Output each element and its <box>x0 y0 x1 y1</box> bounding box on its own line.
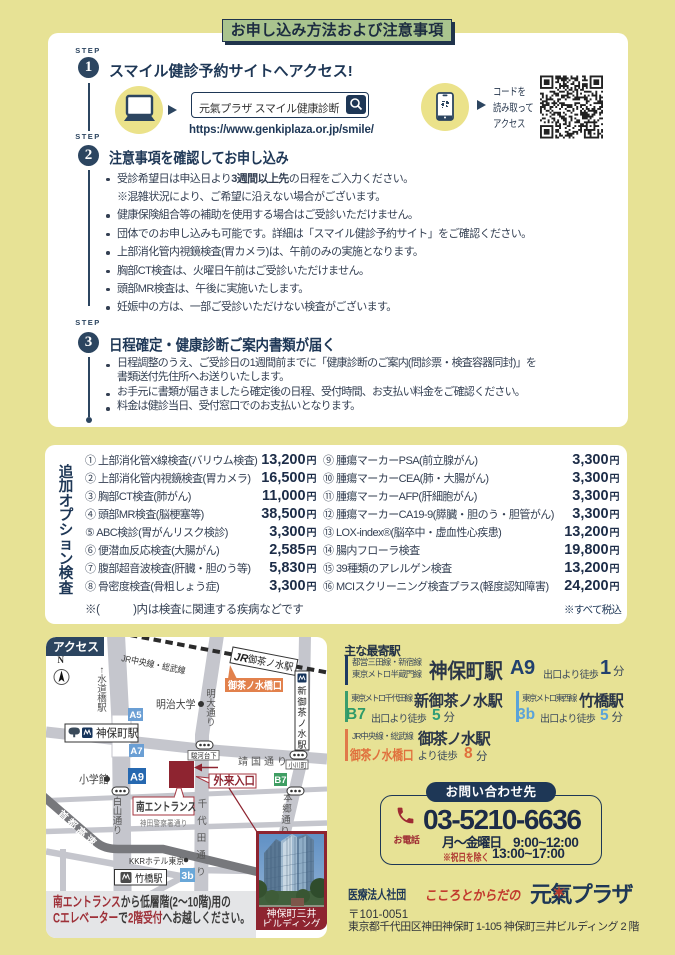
svg-text:A5: A5 <box>129 710 142 721</box>
svg-text:御茶ノ水橋口: 御茶ノ水橋口 <box>227 680 282 693</box>
svg-text:明大通り: 明大通り <box>206 689 216 729</box>
svg-text:N: N <box>58 655 65 665</box>
svg-text:Cエレベーターで2階受付へお越しください。: Cエレベーターで2階受付へお越しください。 <box>53 910 250 926</box>
svg-text:靖国通り: 靖国通り <box>238 755 290 768</box>
svg-text:アクセス: アクセス <box>53 640 99 654</box>
svg-text:外来入口: 外来入口 <box>213 773 255 788</box>
svg-text:白山通り: 白山通り <box>113 796 123 837</box>
svg-text:3b: 3b <box>181 870 193 882</box>
svg-text:竹橋駅: 竹橋駅 <box>135 873 163 885</box>
svg-text:神田警察署通り: 神田警察署通り <box>140 818 188 828</box>
svg-text:南エントランスから低層階(2〜10階)用の: 南エントランスから低層階(2〜10階)用の <box>53 894 231 910</box>
svg-text:駿河台下: 駿河台下 <box>191 751 217 760</box>
svg-text:A7: A7 <box>130 746 142 757</box>
svg-text:南エントランス: 南エントランス <box>136 799 196 814</box>
svg-text:KKRホテル東京: KKRホテル東京 <box>129 856 184 866</box>
svg-text:B7: B7 <box>274 775 286 786</box>
svg-text:神保町三井: 神保町三井 <box>267 907 317 920</box>
svg-text:神保町駅: 神保町駅 <box>96 726 138 741</box>
svg-text:A9: A9 <box>130 772 144 784</box>
svg-text:小川町: 小川町 <box>289 760 308 769</box>
svg-text:新御茶ノ水駅: 新御茶ノ水駅 <box>297 685 307 750</box>
svg-text:明治大学: 明治大学 <box>156 697 196 711</box>
